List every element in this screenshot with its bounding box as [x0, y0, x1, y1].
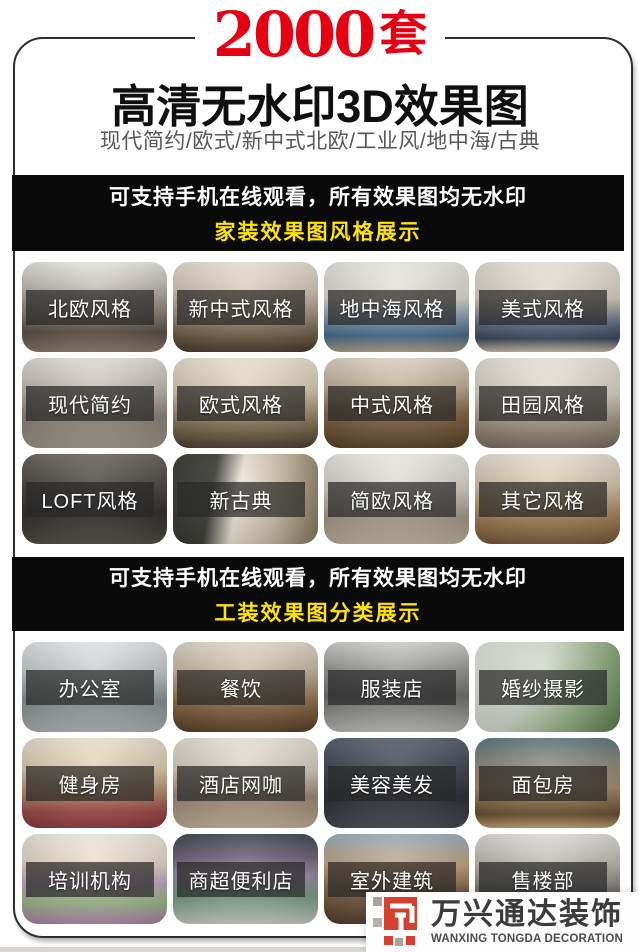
- card-label-band: 健身房: [26, 766, 154, 801]
- count-badge-inner: 2000 套: [195, 2, 446, 68]
- count-number: 2000: [213, 2, 374, 68]
- card-label: 简欧风格: [350, 485, 434, 514]
- card-label: 北欧风格: [48, 293, 132, 322]
- card-label: LOFT风格: [41, 485, 138, 514]
- photo-card: 面包房: [475, 738, 620, 828]
- photo-card: 酒店网咖: [173, 738, 318, 828]
- card-label: 地中海风格: [340, 293, 445, 322]
- home-style-grid: 北欧风格新中式风格地中海风格美式风格现代简约欧式风格中式风格田园风格LOFT风格…: [22, 262, 620, 544]
- photo-card: 餐饮: [173, 642, 318, 732]
- card-label: 美容美发: [350, 769, 434, 798]
- card-label-band: 美式风格: [479, 290, 607, 325]
- photo-card: 中式风格: [324, 358, 469, 448]
- photo-card: 简欧风格: [324, 454, 469, 544]
- card-label: 培训机构: [48, 865, 132, 894]
- photo-card: 现代简约: [22, 358, 167, 448]
- card-label-band: 办公室: [26, 670, 154, 705]
- count-unit: 套: [379, 5, 427, 65]
- card-label: 现代简约: [48, 389, 132, 418]
- card-label-band: 婚纱摄影: [479, 670, 607, 705]
- card-label-band: 田园风格: [479, 386, 607, 421]
- banner-text: 可支持手机在线观看，所有效果图均无水印: [109, 562, 527, 592]
- card-label-band: 北欧风格: [26, 290, 154, 325]
- card-label-band: 地中海风格: [328, 290, 456, 325]
- card-label: 面包房: [512, 769, 575, 798]
- brand-name-cn: 万兴通达装饰: [431, 899, 623, 931]
- commercial-category-grid: 办公室餐饮服装店婚纱摄影健身房酒店网咖美容美发面包房培训机构商超便利店室外建筑售…: [22, 642, 620, 924]
- card-label: 田园风格: [501, 389, 585, 418]
- card-label-band: 现代简约: [26, 386, 154, 421]
- photo-card: 美容美发: [324, 738, 469, 828]
- card-label-band: 中式风格: [328, 386, 456, 421]
- brand-logo-text: 万兴通达装饰 WANXING TONGDA DECORATION: [431, 899, 623, 945]
- brand-name-en: WANXING TONGDA DECORATION: [431, 933, 623, 945]
- photo-card: 其它风格: [475, 454, 620, 544]
- photo-card: 新中式风格: [173, 262, 318, 352]
- photo-card: 服装店: [324, 642, 469, 732]
- card-label: 服装店: [361, 673, 424, 702]
- card-label: 办公室: [59, 673, 122, 702]
- card-label-band: 其它风格: [479, 482, 607, 517]
- card-label: 婚纱摄影: [501, 673, 585, 702]
- wanxing-logo-mark-icon: [373, 896, 425, 948]
- card-label-band: 培训机构: [26, 862, 154, 897]
- photo-card: 婚纱摄影: [475, 642, 620, 732]
- card-label: 新古典: [210, 485, 273, 514]
- card-label: 中式风格: [350, 389, 434, 418]
- photo-card: 北欧风格: [22, 262, 167, 352]
- photo-card: 商超便利店: [173, 834, 318, 924]
- card-label: 新中式风格: [189, 293, 294, 322]
- card-label: 餐饮: [220, 673, 262, 702]
- card-label: 酒店网咖: [199, 769, 283, 798]
- banner-commercial-categories: 可支持手机在线观看，所有效果图均无水印 工装效果图分类展示: [12, 557, 624, 631]
- card-label-band: 酒店网咖: [177, 766, 305, 801]
- photo-card: 美式风格: [475, 262, 620, 352]
- photo-card: 新古典: [173, 454, 318, 544]
- banner-highlight-text: 家装效果图风格展示: [215, 216, 422, 246]
- card-label: 室外建筑: [350, 865, 434, 894]
- card-label-band: 美容美发: [328, 766, 456, 801]
- card-label: 商超便利店: [189, 865, 294, 894]
- card-label-band: 面包房: [479, 766, 607, 801]
- card-label: 售楼部: [512, 865, 575, 894]
- photo-card: 田园风格: [475, 358, 620, 448]
- banner-highlight-text: 工装效果图分类展示: [215, 597, 422, 627]
- card-label-band: 服装店: [328, 670, 456, 705]
- card-label: 欧式风格: [199, 389, 283, 418]
- card-label-band: 新古典: [177, 482, 305, 517]
- card-label-band: 简欧风格: [328, 482, 456, 517]
- card-label: 美式风格: [501, 293, 585, 322]
- photo-card: 办公室: [22, 642, 167, 732]
- card-label: 其它风格: [501, 485, 585, 514]
- brand-logo: 万兴通达装饰 WANXING TONGDA DECORATION: [366, 892, 640, 952]
- photo-card: 地中海风格: [324, 262, 469, 352]
- page-subtitle: 现代简约/欧式/新中式北欧/工业风/地中海/古典: [0, 125, 640, 155]
- photo-card: 健身房: [22, 738, 167, 828]
- card-label-band: 商超便利店: [177, 862, 305, 897]
- photo-card: 欧式风格: [173, 358, 318, 448]
- photo-card: LOFT风格: [22, 454, 167, 544]
- count-badge: 2000 套: [0, 2, 640, 68]
- card-label-band: 新中式风格: [177, 290, 305, 325]
- card-label-band: LOFT风格: [26, 482, 154, 517]
- banner-text: 可支持手机在线观看，所有效果图均无水印: [109, 181, 527, 211]
- promo-poster: 2000 套 高清无水印3D效果图 现代简约/欧式/新中式北欧/工业风/地中海/…: [0, 0, 640, 952]
- card-label-band: 餐饮: [177, 670, 305, 705]
- card-label: 健身房: [59, 769, 122, 798]
- photo-card: 培训机构: [22, 834, 167, 924]
- banner-home-styles: 可支持手机在线观看，所有效果图均无水印 家装效果图风格展示: [12, 175, 624, 251]
- card-label-band: 欧式风格: [177, 386, 305, 421]
